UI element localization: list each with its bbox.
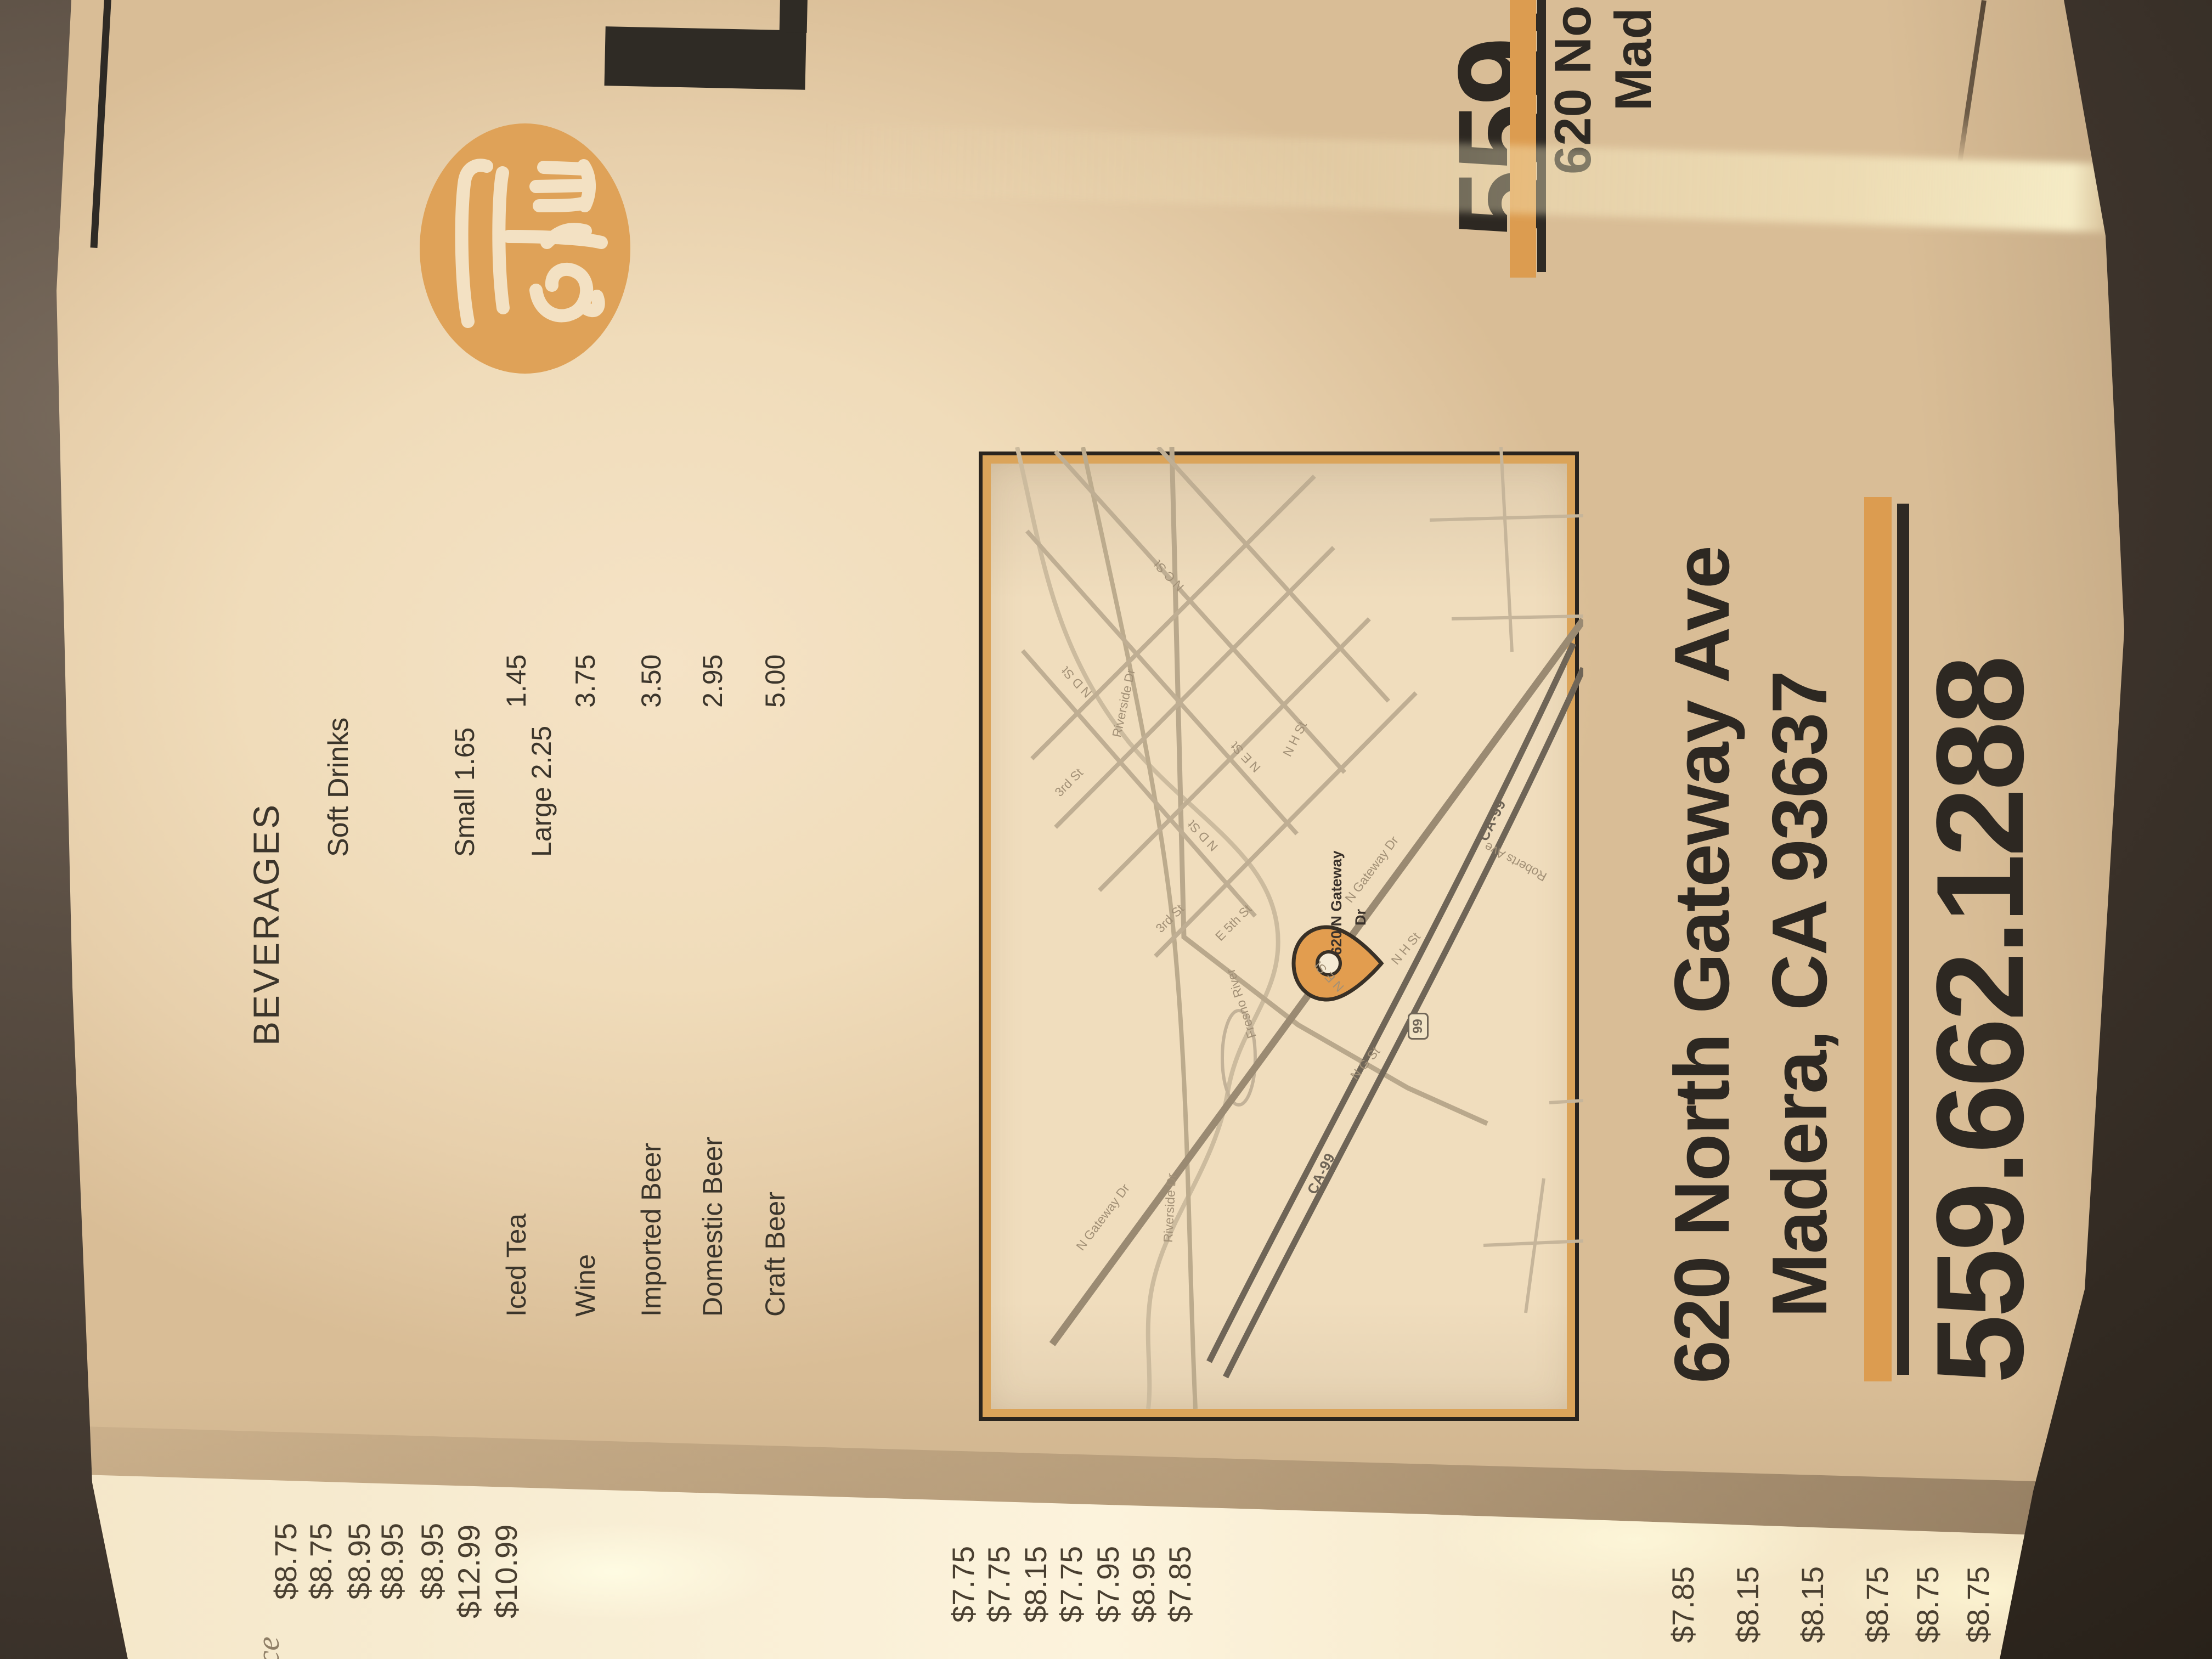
partial-price: $7.75 [984,1546,1014,1623]
beverage-item-price: 3.75 [572,654,599,708]
location-map: N Gateway Dr N Gateway Dr CA-99 CA-99 Ri… [979,452,1579,1421]
address-line-2: Madera, CA 93637 [1761,672,1839,1318]
partial-price: $7.75 [1056,1546,1087,1623]
partial-price: $8.75 [1862,1566,1893,1643]
beverages-heading: BEVERAGES [248,803,284,1046]
letter-l-foot [780,0,808,33]
partial-price: $8.95 [344,1523,375,1600]
beverage-item-label: Craft Beer [761,1192,789,1317]
pin-label-line2: Dr [1353,909,1368,926]
partial-price: $8.75 [1912,1566,1943,1643]
partial-price: $8.15 [1797,1566,1828,1643]
liu-seal-logo [420,123,630,374]
beverage-item-price: 2.95 [699,654,726,708]
partial-price: $8.15 [1020,1546,1051,1623]
partial-price: $8.75 [1963,1566,1994,1643]
partial-price: $8.15 [1733,1566,1763,1643]
beverage-item-price: 5.00 [761,654,789,708]
seal-glyph-icon [420,123,630,374]
fold-crease-line [1957,0,1987,162]
photo-scene: BEVERAGES Soft Drinks Small 1.65 Large 2… [0,0,2212,1659]
partial-price: $7.75 [948,1546,979,1623]
beverage-item-label: Domestic Beer [699,1137,726,1317]
partial-price: $8.75 [306,1523,336,1600]
address-underline-black [1897,504,1909,1375]
beverage-item-label: Wine [572,1254,599,1317]
cover-rule [91,0,111,248]
cover-address-partial-2: Mad [1607,8,1659,111]
partial-price: $10.99 [491,1525,522,1618]
phone-number: 559.662.1288 [1918,658,2042,1384]
beverage-item-label: Iced Tea [503,1214,530,1317]
pin-label-line1: 620 N Gateway [1329,850,1344,955]
partial-price: $8.95 [417,1523,448,1600]
partial-price: $8.95 [1128,1546,1159,1623]
beverage-item-price: 1.45 [503,654,530,708]
cover-letter-l [601,0,812,98]
partial-price: $7.85 [1668,1566,1699,1643]
map-roads-icon [991,447,1583,1409]
highway-shield-badge: 99 [1408,1013,1429,1040]
soft-drinks-small-price: Small 1.65 [451,727,478,857]
soft-drinks-large-price: Large 2.25 [528,726,555,857]
menu-sheet: BEVERAGES Soft Drinks Small 1.65 Large 2… [0,0,2212,1659]
address-underline-orange [1864,497,1892,1381]
beverage-item-label: Imported Beer [637,1143,665,1317]
seal-circle [420,123,630,374]
beverage-item-price: 3.50 [637,654,665,708]
soft-drinks-label: Soft Drinks [324,718,353,857]
partial-price: $8.95 [377,1523,408,1600]
letter-l-stem [605,26,806,90]
partial-price: $7.85 [1165,1546,1195,1623]
cover-underline-orange [1510,0,1536,278]
partial-price: $8.75 [270,1523,301,1600]
partial-price: $7.95 [1093,1546,1124,1623]
partial-item-rice: Rice [252,1637,284,1659]
address-line-1: 620 North Gateway Ave [1663,546,1741,1384]
partial-price: $12.99 [454,1525,484,1618]
